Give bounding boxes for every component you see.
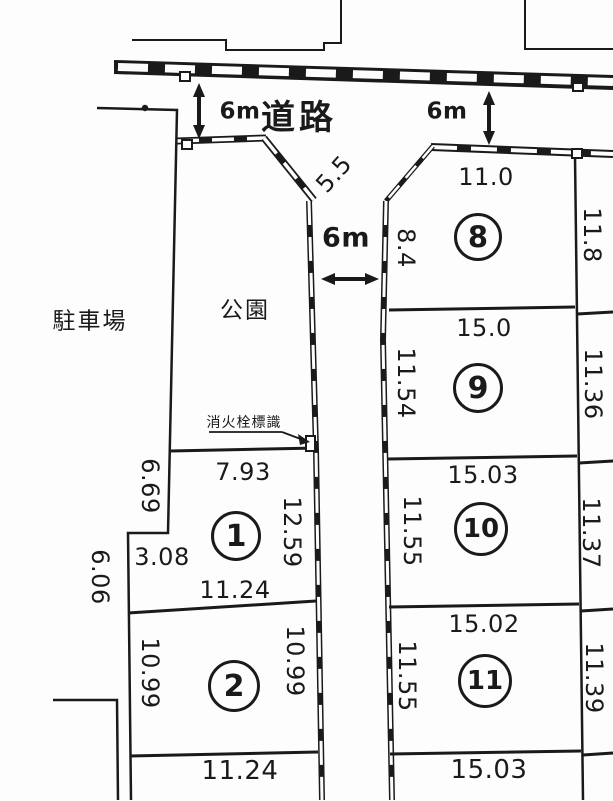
outer-left-dim-label: 6.06 — [88, 549, 112, 604]
plot-boundaries — [128, 156, 613, 800]
road-width-arrow-mid — [321, 273, 379, 285]
plot-10-top-dim: 15.03 — [447, 463, 518, 487]
road-edge-right — [383, 201, 392, 800]
plot-8-left-dim: 8.4 — [394, 228, 418, 268]
plot-10-left-dim: 11.55 — [400, 495, 424, 566]
road-width-left-label: 6m — [220, 101, 261, 124]
building-outlines — [132, 0, 613, 50]
road-edge-left — [309, 201, 322, 800]
plot-11-right-dim: 11.39 — [582, 642, 606, 713]
hydrant-leader-arrow — [209, 432, 310, 445]
plot-9-right-dim: 11.36 — [581, 348, 605, 419]
plot-8-top-dim: 11.0 — [458, 165, 513, 189]
plot-8-right-dim: 11.8 — [580, 207, 604, 262]
road-width-arrow-left — [193, 83, 205, 139]
plot-8-number: 8 — [454, 213, 502, 261]
plot-10-number: 10 — [454, 502, 508, 556]
plot-9-top-dim: 15.0 — [456, 316, 511, 340]
plot-below-top-dim: 15.03 — [451, 757, 528, 783]
road-width-right-label: 6m — [427, 101, 468, 124]
road-width-mid-label: 6m — [322, 225, 370, 252]
hydrant-label: 消火栓標識 — [207, 416, 282, 430]
park-label: 公園 — [220, 300, 270, 323]
road-width-arrow-right — [483, 91, 495, 145]
plot-11-top-dim: 15.02 — [448, 612, 519, 636]
plot-1-left-dim: 6.69 — [138, 458, 162, 513]
plot-11-left-dim: 11.55 — [395, 640, 419, 711]
plot-10-right-dim: 11.37 — [579, 497, 603, 568]
plot-2-right-dim: 10.99 — [283, 625, 307, 696]
plot-11-number: 11 — [458, 654, 512, 708]
plot-1-top-dim: 7.93 — [215, 460, 270, 484]
park-top-hatch — [177, 138, 314, 200]
plot-1-right-dim: 12.59 — [280, 496, 304, 567]
plot-1-step-dim: 3.08 — [134, 545, 189, 569]
site-plan-map: 道路 駐車場 公園 消火栓標識 6m 6m 6m 5.5 6.06 1 7.93… — [0, 0, 613, 801]
plot-1-bottom-dim: 11.24 — [199, 578, 270, 602]
road-label: 道路 — [261, 101, 337, 135]
plot-2-left-dim: 10.99 — [138, 637, 162, 708]
plot-2-bottom-dim: 11.24 — [202, 758, 279, 784]
plot-9-left-dim: 11.54 — [394, 347, 418, 418]
parking-label: 駐車場 — [53, 311, 128, 334]
plot-9-number: 9 — [453, 363, 503, 413]
plot-2-number: 2 — [208, 660, 260, 712]
plot-1-number: 1 — [211, 511, 261, 561]
